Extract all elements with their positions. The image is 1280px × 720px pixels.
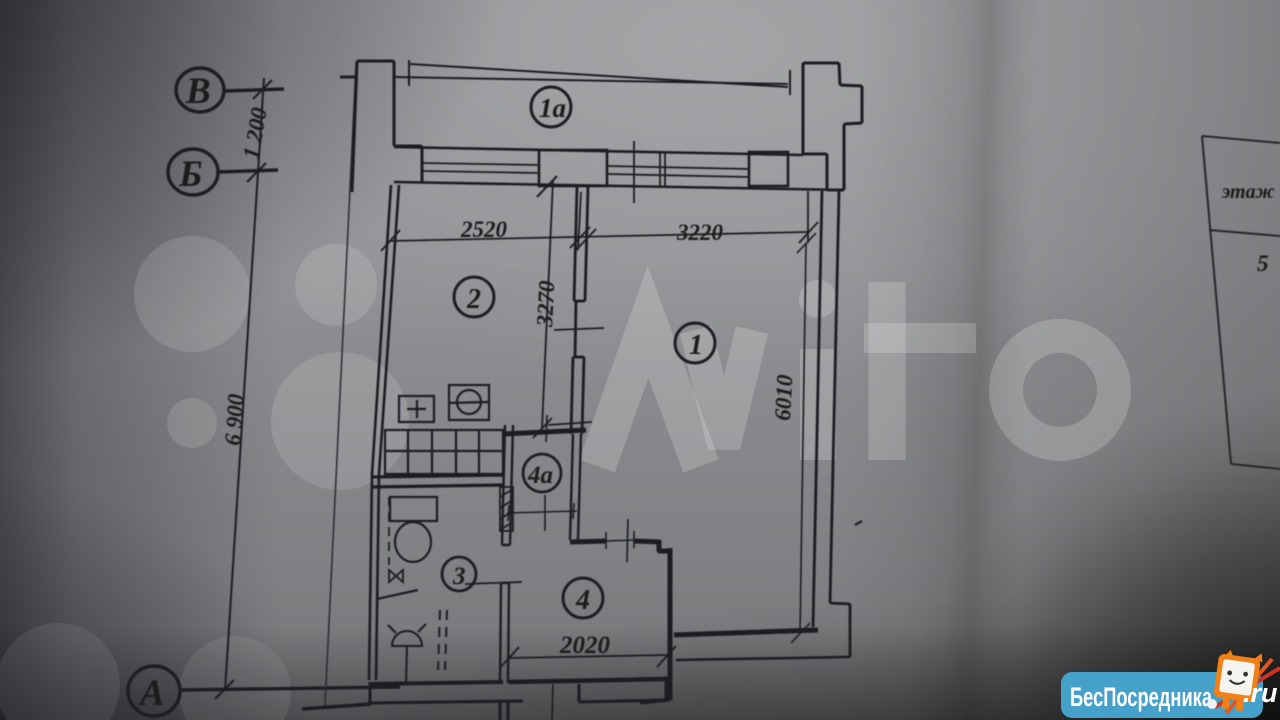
svg-text:3: 3: [452, 563, 466, 590]
svg-text:4: 4: [575, 585, 590, 616]
svg-text:А: А: [138, 673, 165, 714]
svg-text:1а: 1а: [539, 93, 566, 123]
svg-text:2: 2: [466, 284, 481, 315]
svg-text:4а: 4а: [527, 462, 553, 489]
svg-text:В: В: [185, 71, 211, 112]
svg-text:1 200: 1 200: [238, 105, 272, 161]
svg-text:БесПосредника: БесПосредника: [1070, 682, 1213, 712]
svg-text:.ru: .ru: [1243, 678, 1278, 708]
svg-text:5: 5: [1257, 251, 1269, 276]
svg-text:1: 1: [689, 330, 703, 361]
svg-text:3270: 3270: [532, 280, 559, 329]
svg-text:этаж: этаж: [1221, 181, 1275, 203]
svg-text:2020: 2020: [559, 632, 611, 659]
svg-text:2520: 2520: [460, 217, 508, 242]
svg-text:Б: Б: [178, 154, 203, 195]
svg-text:3220: 3220: [676, 220, 724, 245]
svg-text:6010: 6010: [770, 374, 797, 422]
svg-text:6 900: 6 900: [220, 392, 249, 446]
